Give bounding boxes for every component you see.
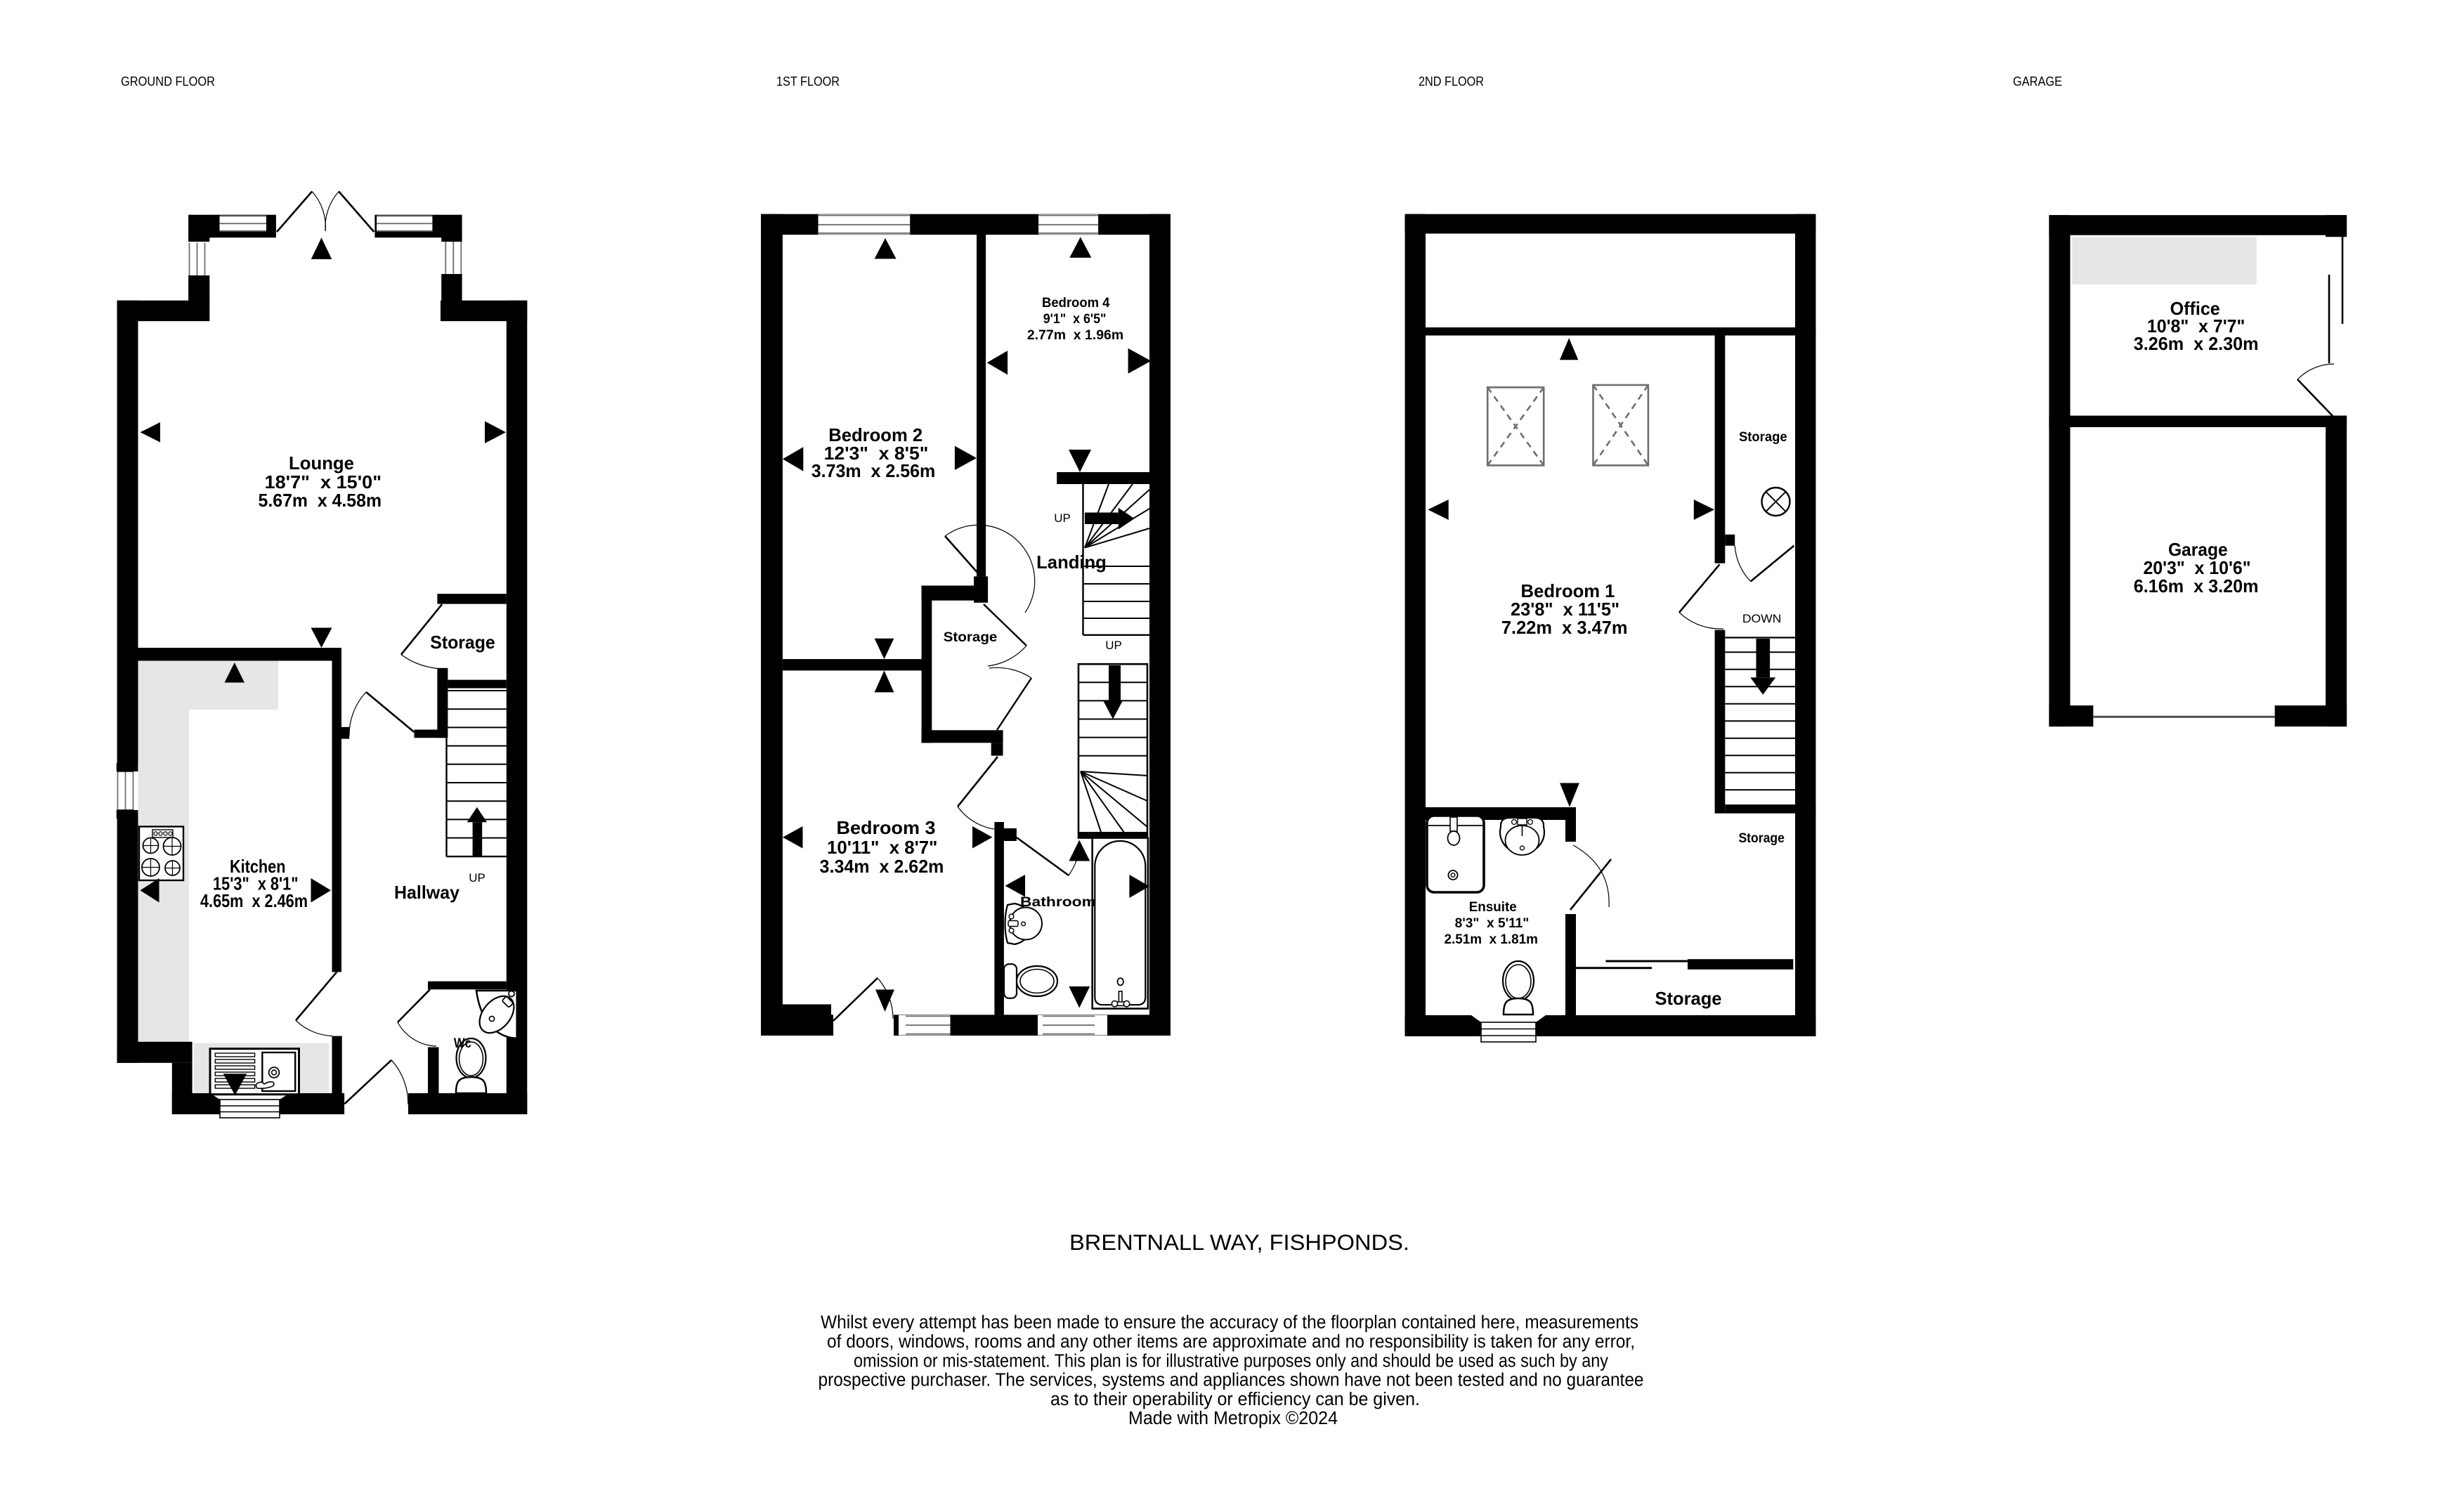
svg-text:8'3" x 5'11": 8'3" x 5'11": [1455, 915, 1530, 931]
svg-text:Bathroom: Bathroom: [1020, 894, 1096, 910]
svg-text:Lounge: Lounge: [289, 452, 354, 474]
svg-text:5.67m x 4.58m: 5.67m x 4.58m: [259, 490, 382, 511]
svg-text:Ensuite: Ensuite: [1469, 899, 1517, 915]
svg-text:6.16m x 3.20m: 6.16m x 3.20m: [2134, 575, 2259, 596]
svg-text:UP: UP: [1054, 511, 1071, 525]
svg-text:Wc: Wc: [454, 1036, 471, 1051]
svg-text:10'11" x 8'7": 10'11" x 8'7": [827, 837, 937, 858]
svg-text:Storage: Storage: [1739, 429, 1787, 445]
svg-text:GARAGE: GARAGE: [2013, 74, 2062, 89]
svg-text:3.26m x 2.30m: 3.26m x 2.30m: [2134, 333, 2259, 354]
svg-text:Hallway: Hallway: [394, 882, 460, 903]
svg-text:UP: UP: [469, 871, 485, 885]
svg-text:3.73m x 2.56m: 3.73m x 2.56m: [811, 460, 936, 481]
svg-text:Whilst every attempt has been: Whilst every attempt has been made to en…: [821, 1313, 1638, 1333]
svg-text:Bedroom 4: Bedroom 4: [1042, 295, 1110, 311]
svg-text:4.65m x 2.46m: 4.65m x 2.46m: [200, 890, 308, 911]
svg-text:2.51m x 1.81m: 2.51m x 1.81m: [1445, 932, 1538, 947]
svg-text:Landing: Landing: [1036, 552, 1107, 573]
svg-text:Storage: Storage: [1655, 988, 1722, 1009]
svg-text:as to their operability or eff: as to their operability or efficiency ca…: [1050, 1390, 1420, 1409]
svg-text:of doors, windows, rooms and a: of doors, windows, rooms and any other i…: [827, 1332, 1635, 1352]
svg-text:3.34m x 2.62m: 3.34m x 2.62m: [820, 856, 944, 877]
svg-text:DOWN: DOWN: [1742, 612, 1782, 625]
svg-text:2ND FLOOR: 2ND FLOOR: [1419, 74, 1484, 89]
svg-text:UP: UP: [1105, 639, 1122, 652]
svg-text:omission or mis-statement. Thi: omission or mis-statement. This plan is …: [854, 1351, 1608, 1371]
svg-text:Made with Metropix ©2024: Made with Metropix ©2024: [1128, 1409, 1338, 1428]
svg-text:GROUND FLOOR: GROUND FLOOR: [121, 74, 215, 89]
svg-text:BRENTNALL WAY, FISHPONDS.: BRENTNALL WAY, FISHPONDS.: [1069, 1230, 1409, 1255]
svg-text:Bedroom 3: Bedroom 3: [837, 817, 936, 838]
svg-text:Storage: Storage: [430, 632, 495, 653]
svg-text:9'1" x 6'5": 9'1" x 6'5": [1043, 311, 1107, 327]
svg-text:Storage: Storage: [944, 630, 998, 645]
svg-text:7.22m x 3.47m: 7.22m x 3.47m: [1501, 617, 1628, 638]
svg-text:prospective purchaser. The ser: prospective purchaser. The services, sys…: [819, 1371, 1644, 1390]
svg-text:1ST FLOOR: 1ST FLOOR: [776, 74, 840, 89]
svg-text:2.77m x 1.96m: 2.77m x 1.96m: [1027, 327, 1123, 343]
svg-text:Storage: Storage: [1738, 830, 1785, 846]
